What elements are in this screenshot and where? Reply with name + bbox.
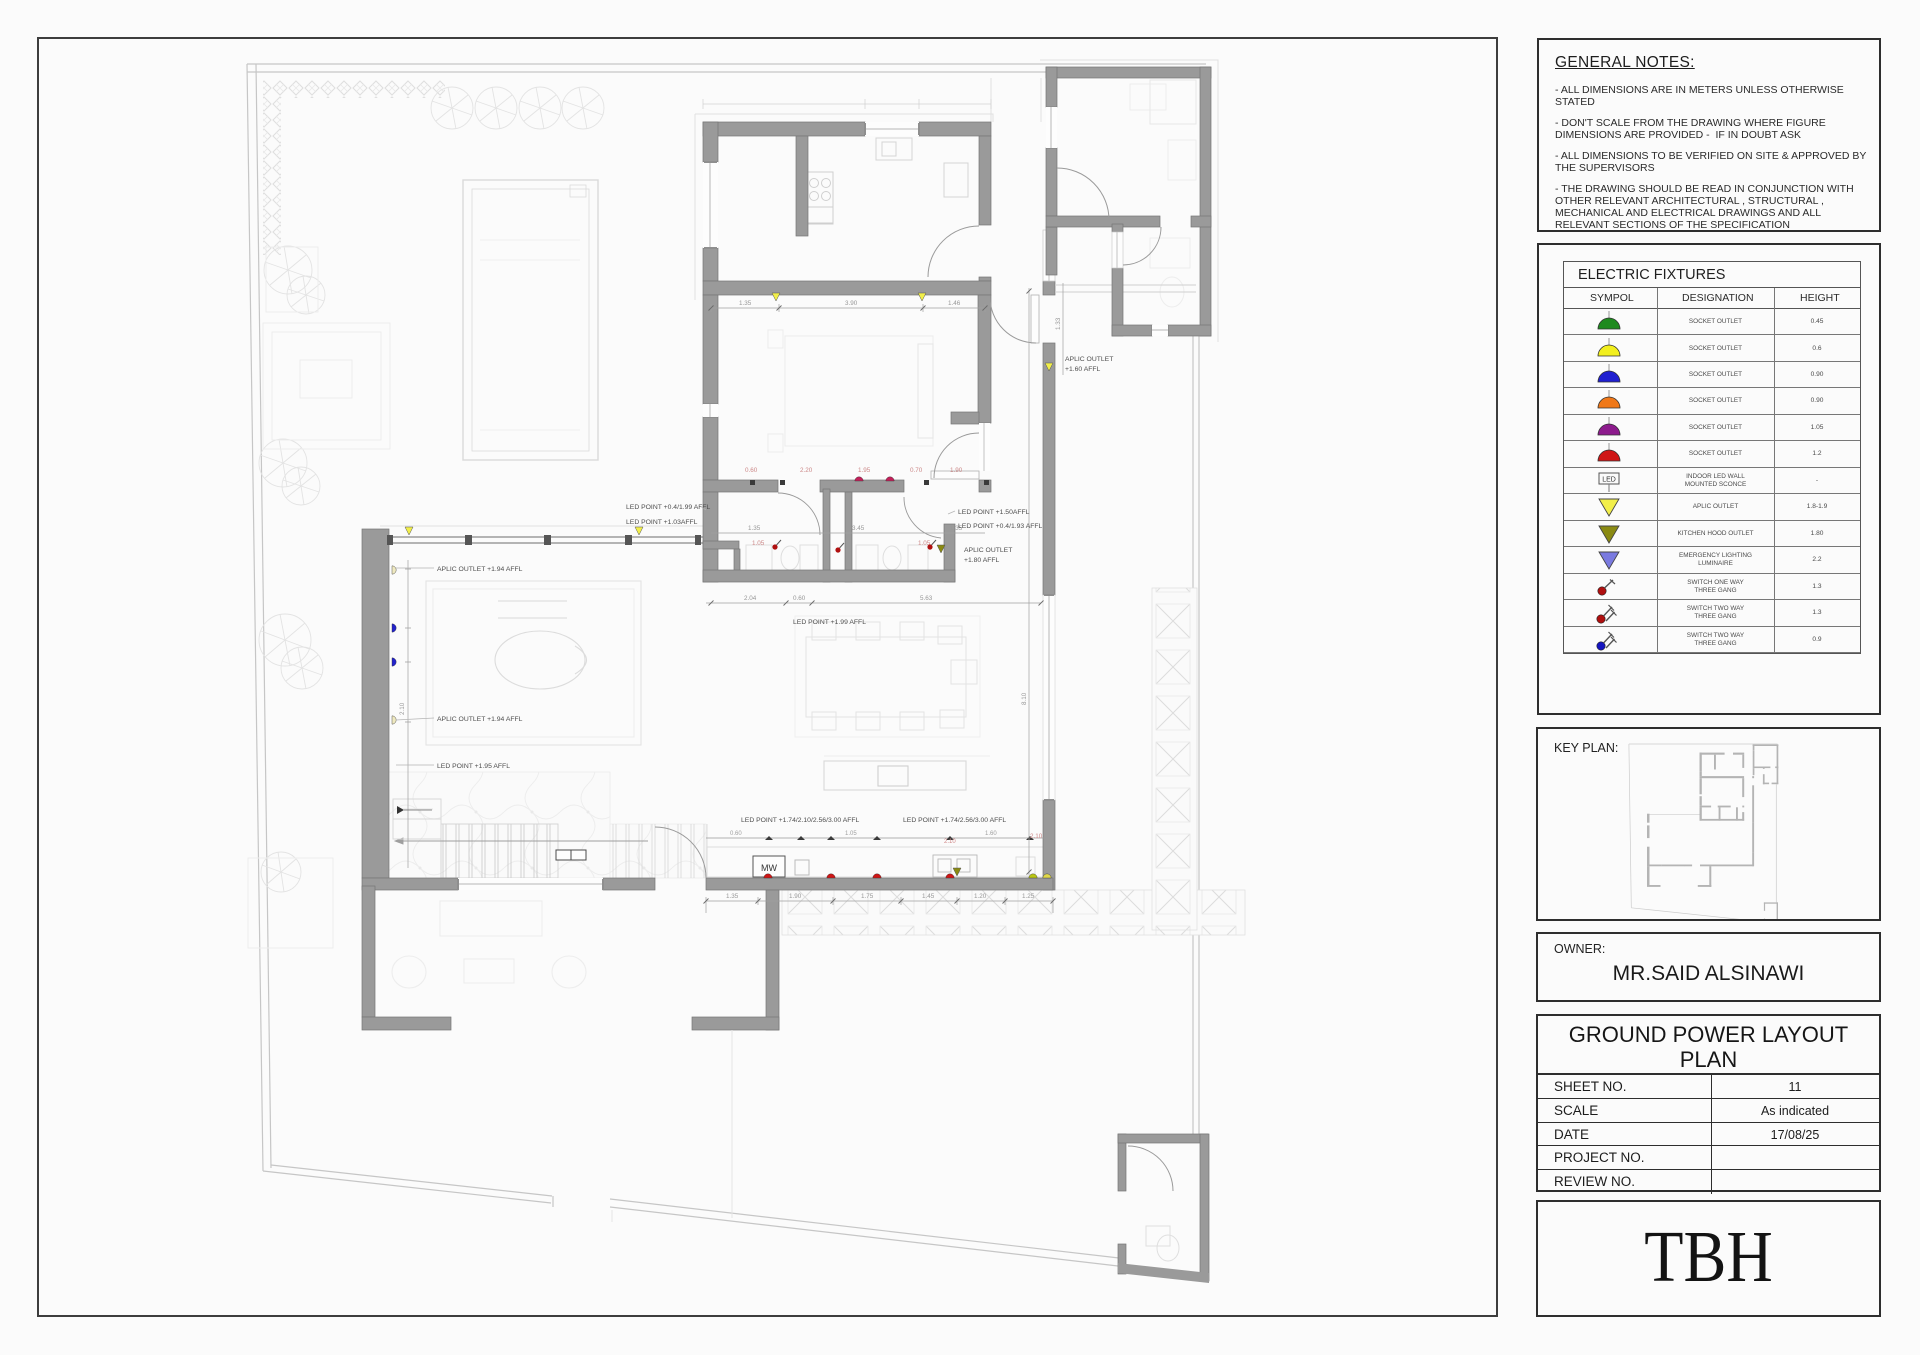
svg-text:2.04: 2.04 [744,595,757,602]
svg-text:2.10: 2.10 [1030,833,1043,840]
svg-text:2.20: 2.20 [800,467,813,474]
svg-text:LED: LED [1602,476,1616,483]
svg-text:8.10: 8.10 [1021,692,1028,705]
svg-text:LED POINT +1.50AFFL: LED POINT +1.50AFFL [958,509,1030,516]
svg-text:1.25: 1.25 [1022,893,1035,900]
svg-text:1.60: 1.60 [985,831,997,837]
svg-text:2.10: 2.10 [399,702,406,715]
svg-text:0.70: 0.70 [910,467,923,474]
svg-text:1.05: 1.05 [845,831,857,837]
svg-text:APLIC OUTLET: APLIC OUTLET [964,547,1012,554]
svg-text:1.05: 1.05 [752,540,765,547]
svg-text:APLIC OUTLET +1.94 AFFL: APLIC OUTLET +1.94 AFFL [437,716,523,723]
svg-text:LED POINT +0.4/1.93 AFFL: LED POINT +0.4/1.93 AFFL [958,523,1043,530]
svg-text:LED POINT +1.74/2.10/2.56/3.00: LED POINT +1.74/2.10/2.56/3.00 AFFL [741,817,860,824]
svg-text:0.60: 0.60 [793,595,806,602]
svg-text:0.60: 0.60 [745,467,758,474]
svg-text:1.35: 1.35 [739,300,752,307]
svg-text:3.90: 3.90 [845,300,858,307]
svg-text:+1.80 AFFL: +1.80 AFFL [964,557,1000,564]
svg-text:1.45: 1.45 [922,893,935,900]
svg-text:1.20: 1.20 [974,893,987,900]
svg-text:1.90: 1.90 [789,893,802,900]
svg-text:0.60: 0.60 [730,831,742,837]
svg-text:APLIC OUTLET +1.94 AFFL: APLIC OUTLET +1.94 AFFL [437,566,523,573]
svg-text:2.10: 2.10 [944,839,956,845]
svg-text:3.45: 3.45 [852,525,865,532]
svg-text:LED POINT +1.03AFFL: LED POINT +1.03AFFL [626,519,698,526]
svg-text:LED POINT +1.95 AFFL: LED POINT +1.95 AFFL [437,763,510,770]
svg-text:1.35: 1.35 [726,893,739,900]
svg-text:APLIC OUTLET: APLIC OUTLET [1065,356,1113,363]
svg-text:MW: MW [761,863,777,873]
svg-text:1.33: 1.33 [1055,317,1062,330]
svg-text:1.75: 1.75 [861,893,874,900]
svg-text:LED POINT +1.99 AFFL: LED POINT +1.99 AFFL [793,619,866,626]
svg-text:LED POINT +1.74/2.56/3.00 AFFL: LED POINT +1.74/2.56/3.00 AFFL [903,817,1006,824]
svg-text:+1.60 AFFL: +1.60 AFFL [1065,366,1101,373]
svg-text:5.63: 5.63 [920,595,933,602]
svg-text:LED POINT +0.4/1.99 AFFL: LED POINT +0.4/1.99 AFFL [626,504,711,511]
svg-text:1.35: 1.35 [748,525,761,532]
svg-text:1.46: 1.46 [948,300,961,307]
svg-text:1.90: 1.90 [950,467,963,474]
svg-text:1.95: 1.95 [858,467,871,474]
